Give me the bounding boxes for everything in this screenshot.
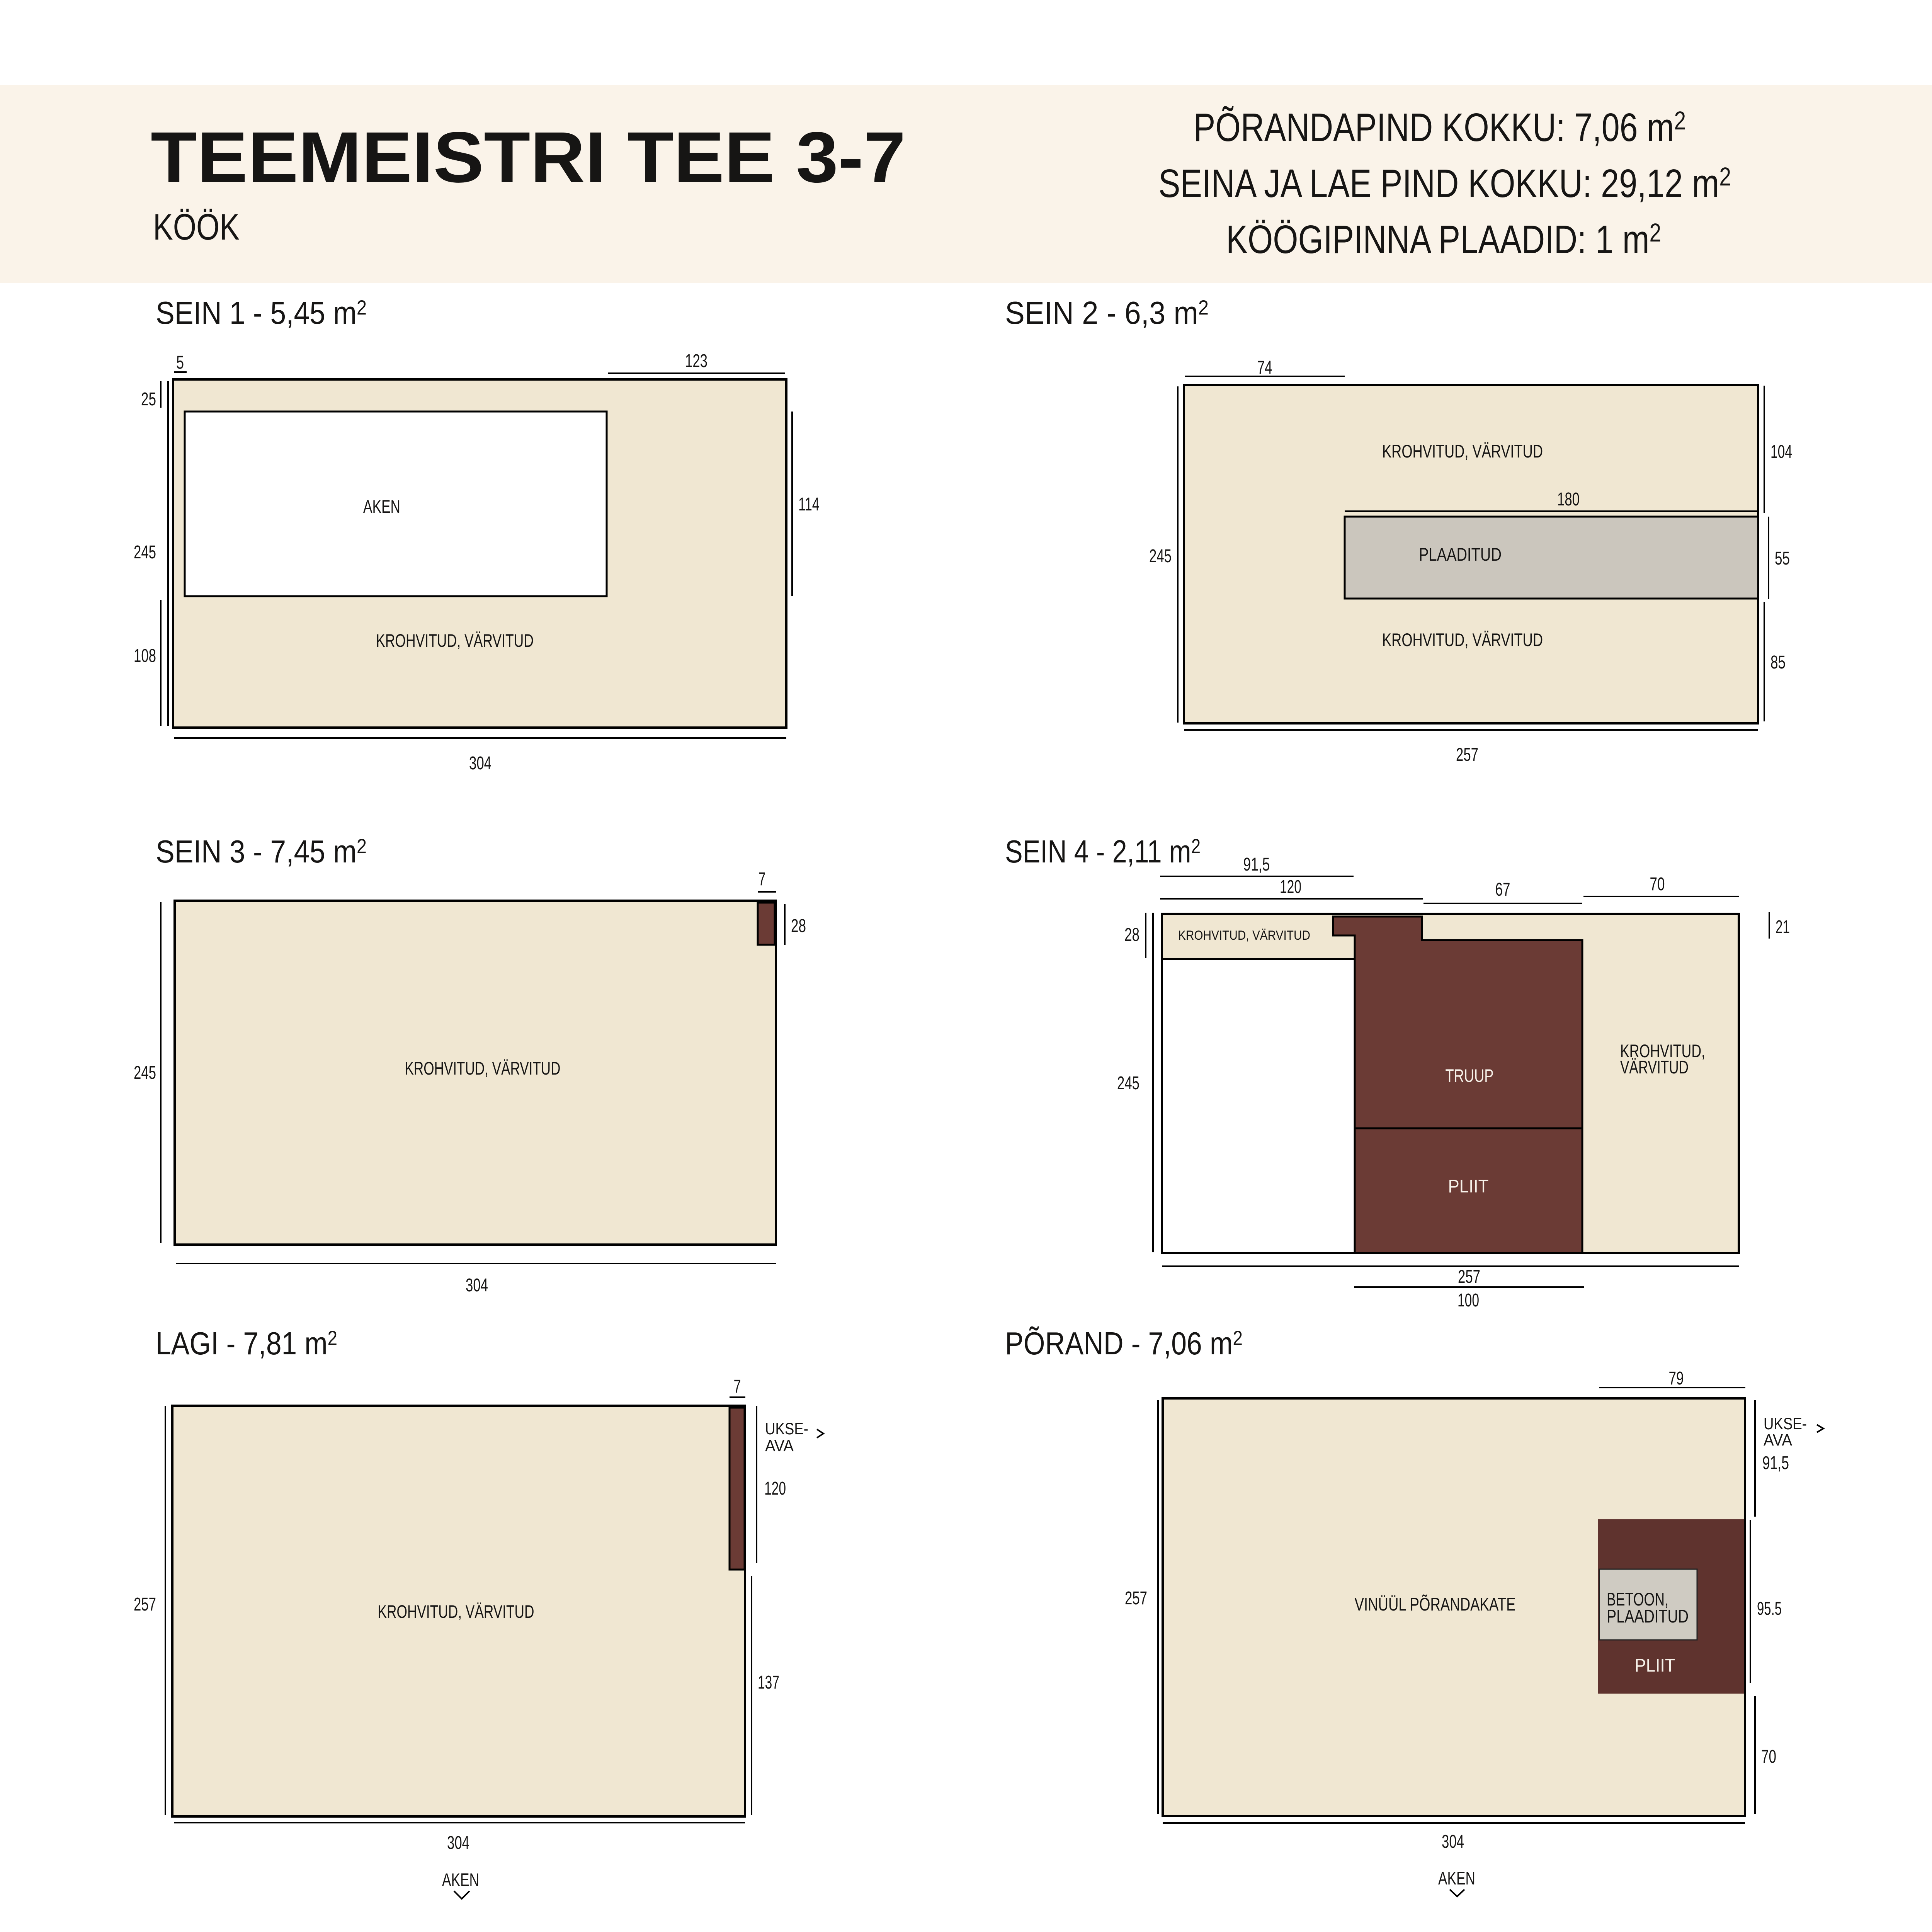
svg-text:VÄRVITUD: VÄRVITUD bbox=[1620, 1057, 1689, 1077]
svg-text:245: 245 bbox=[134, 1063, 156, 1083]
svg-text:304: 304 bbox=[447, 1833, 469, 1853]
svg-text:SEIN 3 - 7,45 m2: SEIN 3 - 7,45 m2 bbox=[156, 833, 367, 869]
svg-text:100: 100 bbox=[1458, 1290, 1479, 1311]
svg-text:28: 28 bbox=[791, 916, 806, 936]
svg-text:PLIIT: PLIIT bbox=[1448, 1176, 1489, 1196]
svg-text:AKEN: AKEN bbox=[1438, 1868, 1475, 1888]
svg-text:304: 304 bbox=[466, 1275, 488, 1296]
svg-text:91,5: 91,5 bbox=[1762, 1453, 1789, 1473]
svg-text:KROHVITUD, VÄRVITUD: KROHVITUD, VÄRVITUD bbox=[1178, 928, 1310, 943]
svg-text:KROHVITUD, VÄRVITUD: KROHVITUD, VÄRVITUD bbox=[1382, 441, 1543, 461]
svg-text:108: 108 bbox=[134, 646, 156, 666]
svg-text:SEINA JA LAE PIND KOKKU: 29,12: SEINA JA LAE PIND KOKKU: 29,12 m2 bbox=[1158, 161, 1731, 206]
svg-text:PÕRANDAPIND KOKKU: 7,06 m2: PÕRANDAPIND KOKKU: 7,06 m2 bbox=[1194, 105, 1686, 150]
svg-text:KÖÖK: KÖÖK bbox=[153, 206, 240, 248]
svg-text:304: 304 bbox=[1442, 1832, 1464, 1852]
svg-text:245: 245 bbox=[1117, 1073, 1139, 1094]
svg-text:120: 120 bbox=[1280, 877, 1301, 897]
svg-text:SEIN 1 - 5,45 m2: SEIN 1 - 5,45 m2 bbox=[156, 295, 367, 331]
svg-text:LAGI - 7,81 m2: LAGI - 7,81 m2 bbox=[156, 1325, 337, 1361]
svg-text:PLAADITUD: PLAADITUD bbox=[1419, 544, 1502, 565]
svg-text:120: 120 bbox=[764, 1478, 786, 1499]
svg-text:TEEMEISTRI TEE 3-7: TEEMEISTRI TEE 3-7 bbox=[151, 117, 906, 197]
svg-text:PLIIT: PLIIT bbox=[1635, 1655, 1675, 1675]
svg-text:257: 257 bbox=[1458, 1267, 1480, 1287]
svg-text:PLAADITUD: PLAADITUD bbox=[1607, 1606, 1689, 1626]
svg-text:SEIN 4 - 2,11 m2: SEIN 4 - 2,11 m2 bbox=[1005, 833, 1201, 869]
svg-text:KROHVITUD, VÄRVITUD: KROHVITUD, VÄRVITUD bbox=[378, 1601, 534, 1622]
svg-text:245: 245 bbox=[134, 542, 156, 563]
svg-text:21: 21 bbox=[1776, 917, 1790, 937]
svg-text:91,5: 91,5 bbox=[1243, 854, 1270, 875]
svg-text:67: 67 bbox=[1495, 879, 1510, 900]
svg-text:70: 70 bbox=[1761, 1747, 1776, 1767]
svg-text:304: 304 bbox=[469, 753, 492, 774]
svg-text:257: 257 bbox=[1456, 745, 1478, 765]
svg-text:KROHVITUD, VÄRVITUD: KROHVITUD, VÄRVITUD bbox=[376, 630, 534, 651]
svg-text:AKEN: AKEN bbox=[363, 496, 400, 517]
svg-text:257: 257 bbox=[1125, 1588, 1147, 1609]
svg-text:KROHVITUD, VÄRVITUD: KROHVITUD, VÄRVITUD bbox=[1382, 629, 1543, 650]
svg-text:70: 70 bbox=[1650, 874, 1665, 895]
svg-text:AKEN: AKEN bbox=[442, 1869, 479, 1890]
svg-text:55: 55 bbox=[1775, 548, 1790, 569]
svg-text:79: 79 bbox=[1669, 1368, 1684, 1389]
svg-text:123: 123 bbox=[685, 351, 707, 371]
svg-text:137: 137 bbox=[758, 1672, 779, 1693]
svg-text:KROHVITUD, VÄRVITUD: KROHVITUD, VÄRVITUD bbox=[405, 1058, 561, 1078]
svg-text:VINÜÜL PÕRANDAKATE: VINÜÜL PÕRANDAKATE bbox=[1355, 1594, 1516, 1614]
svg-text:104: 104 bbox=[1770, 442, 1792, 462]
svg-text:85: 85 bbox=[1770, 652, 1786, 673]
svg-text:7: 7 bbox=[734, 1376, 741, 1397]
svg-text:28: 28 bbox=[1124, 925, 1139, 945]
svg-text:TRUUP: TRUUP bbox=[1446, 1065, 1494, 1086]
svg-text:UKSE-: UKSE- bbox=[1764, 1415, 1807, 1433]
svg-text:180: 180 bbox=[1557, 489, 1580, 510]
svg-text:74: 74 bbox=[1257, 357, 1272, 378]
svg-text:5: 5 bbox=[176, 352, 184, 373]
svg-text:25: 25 bbox=[141, 389, 156, 410]
svg-text:7: 7 bbox=[759, 869, 766, 889]
svg-text:AVA: AVA bbox=[1764, 1431, 1792, 1449]
svg-text:95.5: 95.5 bbox=[1757, 1599, 1782, 1619]
svg-text:AVA: AVA bbox=[765, 1437, 794, 1455]
svg-text:257: 257 bbox=[134, 1594, 156, 1615]
svg-text:KÖÖGIPINNA PLAADID: 1 m2: KÖÖGIPINNA PLAADID: 1 m2 bbox=[1226, 217, 1661, 262]
svg-text:UKSE-: UKSE- bbox=[765, 1420, 808, 1438]
svg-text:114: 114 bbox=[798, 494, 820, 515]
svg-text:245: 245 bbox=[1149, 546, 1172, 566]
svg-text:SEIN 2 - 6,3 m2: SEIN 2 - 6,3 m2 bbox=[1005, 295, 1209, 331]
svg-text:PÕRAND - 7,06 m2: PÕRAND - 7,06 m2 bbox=[1005, 1325, 1243, 1361]
